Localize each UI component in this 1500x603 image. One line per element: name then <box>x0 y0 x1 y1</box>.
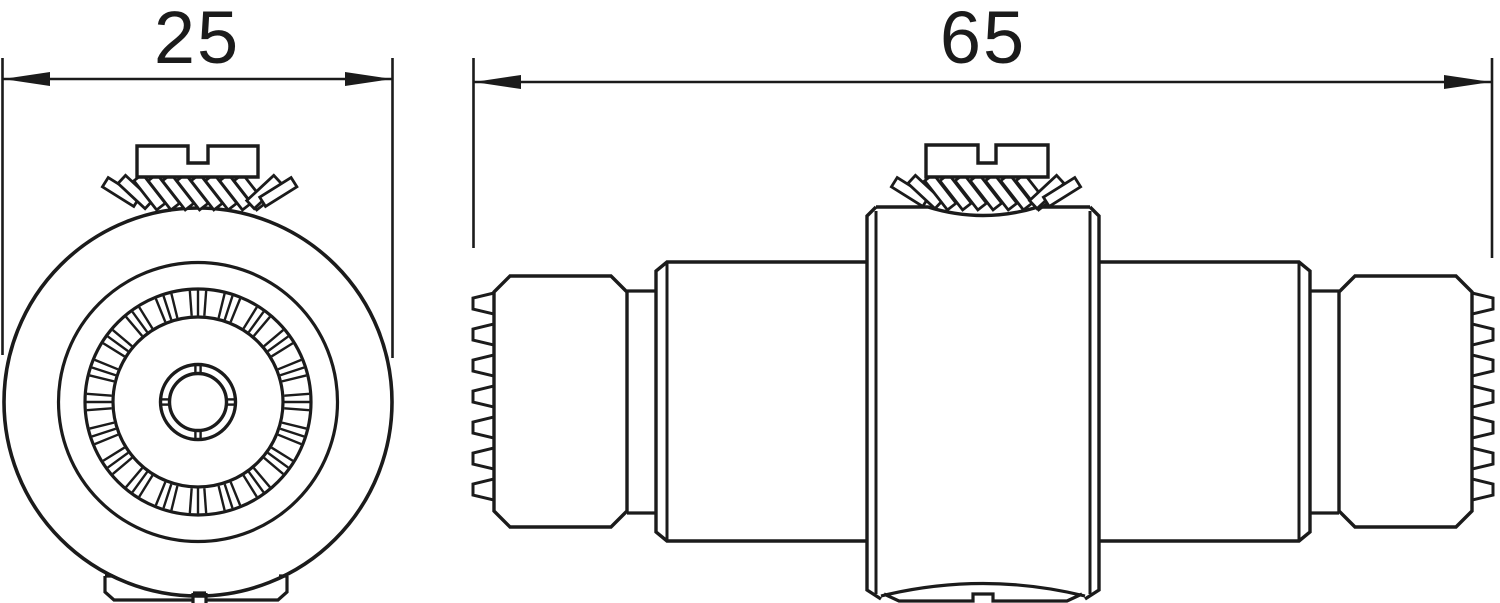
front-view <box>4 146 392 603</box>
knurl-tick <box>156 299 165 322</box>
central-body <box>867 207 1099 599</box>
knurl-tick <box>282 375 306 381</box>
dimension-value-length: 65 <box>940 0 1026 79</box>
knurl-ring-ticks <box>87 291 310 514</box>
arrowhead-left-icon <box>3 72 50 86</box>
knurl-tick <box>190 488 192 513</box>
knurl-tick <box>219 294 225 318</box>
serration-left <box>473 293 494 510</box>
knurl-tick <box>164 484 172 508</box>
knurl-tick <box>113 330 132 346</box>
knurl-tick <box>278 435 301 444</box>
mounting-foot-front <box>105 576 287 603</box>
knurl-tick <box>126 317 142 336</box>
knurl-tick <box>264 330 283 346</box>
knurl-tick <box>164 296 172 320</box>
knurl-tick <box>95 360 118 369</box>
serration-right <box>1472 293 1493 510</box>
knurl-tick <box>90 423 114 429</box>
ground-screw-front <box>137 146 258 177</box>
knurl-tick <box>204 488 206 513</box>
lock-washer-side <box>891 174 1080 210</box>
barrel-left <box>656 262 867 541</box>
knurl-tick <box>231 482 240 505</box>
knurl-tick <box>95 435 118 444</box>
neck-left <box>627 291 656 513</box>
neck-right <box>1310 291 1339 513</box>
arrowhead-right-icon <box>345 72 392 86</box>
knurl-tick <box>87 408 112 410</box>
knurl-tick <box>113 458 132 474</box>
knurl-tick <box>284 408 309 410</box>
lock-washer-front <box>102 174 297 210</box>
knurl-tick <box>92 368 116 376</box>
connector-nut-right <box>1339 276 1472 527</box>
knurl-tick <box>90 375 114 381</box>
arrowhead-right-icon <box>1444 75 1491 89</box>
knurl-tick <box>254 468 270 487</box>
outer-body-circle <box>4 208 392 596</box>
knurl-tick <box>282 423 306 429</box>
knurl-tick <box>190 291 192 316</box>
knurl-tick <box>219 486 225 510</box>
center-pin-hole-circle <box>170 374 227 431</box>
knurl-ring-outer-circle <box>85 289 311 515</box>
drawing-canvas: 25 65 <box>0 0 1500 603</box>
knurl-tick <box>126 468 142 487</box>
knurl-tick <box>225 296 233 320</box>
knurl-tick <box>171 294 177 318</box>
center-insulator-circle <box>161 365 236 440</box>
knurl-tick <box>92 429 116 437</box>
connector-nut-left <box>494 276 627 527</box>
knurl-tick <box>225 484 233 508</box>
arrowhead-left-icon <box>474 75 521 89</box>
knurl-tick <box>284 394 309 396</box>
knurl-tick <box>87 394 112 396</box>
knurl-tick <box>264 458 283 474</box>
dimension-value-front: 25 <box>154 0 240 79</box>
knurl-tick <box>156 482 165 505</box>
side-view <box>473 145 1493 601</box>
knurl-tick <box>280 429 304 437</box>
knurl-tick <box>231 299 240 322</box>
knurl-ring-inner-circle <box>113 317 283 487</box>
ground-screw-side <box>926 145 1048 177</box>
knurl-tick <box>204 291 206 316</box>
barrel-right <box>1099 262 1310 541</box>
knurl-tick <box>278 360 301 369</box>
technical-drawing-svg: 25 65 <box>0 0 1500 603</box>
knurl-tick <box>254 317 270 336</box>
knurl-tick <box>280 368 304 376</box>
knurl-tick <box>171 486 177 510</box>
